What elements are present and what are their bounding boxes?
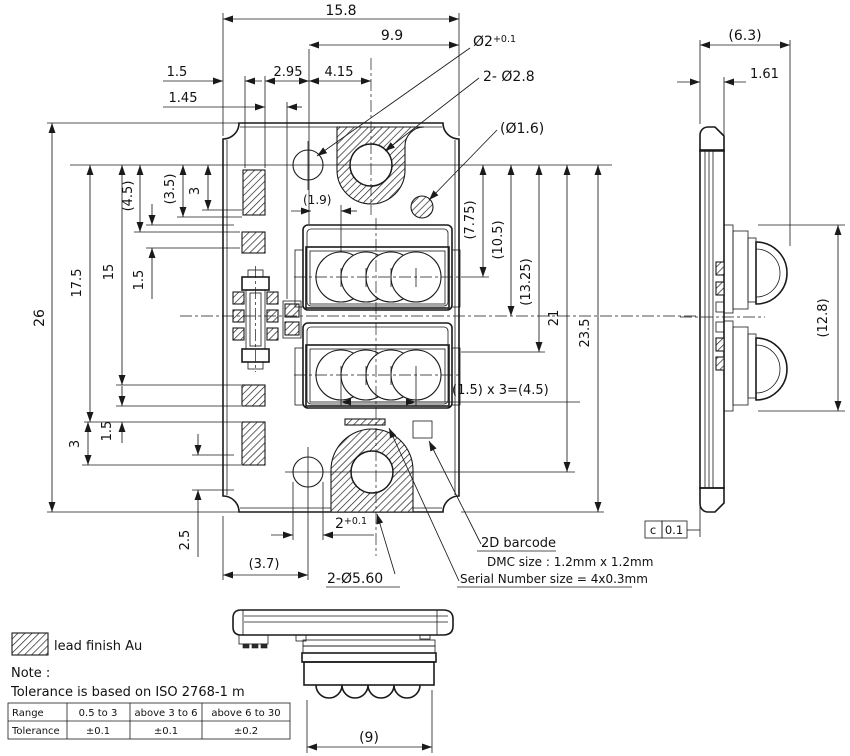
dim-1-61: 1.61 [677, 67, 779, 82]
side-pad [716, 282, 724, 295]
hatch-swatch-icon [12, 633, 48, 655]
swatch-label: lead finish Au [54, 639, 142, 654]
dim-2-5: 2.5 [178, 434, 198, 557]
dim-label: (12.8) [816, 298, 831, 337]
barcode-serial: Serial Number size = 4x0.3mm [460, 572, 648, 586]
dim-9-9: 9.9 [309, 28, 459, 45]
drawing-canvas: 15.8 9.9 1.5 2.95 4.15 1.45 (1.9) [0, 0, 850, 756]
side-pad [716, 338, 724, 351]
bottom-housing [304, 662, 434, 685]
dim-label: 1.61 [750, 67, 779, 82]
gold-pad [242, 385, 265, 406]
dim-13-25: (13.25) [519, 165, 539, 352]
dim-label: 1.5 [167, 65, 188, 80]
callout-label: (Ø1.6) [500, 121, 544, 137]
dim-2-plus-0-1: 2+0.1 [271, 516, 374, 535]
side-top-cap [700, 127, 724, 151]
dim-21: 21 [547, 165, 567, 472]
bottom-stack [302, 653, 436, 662]
dim-label: 26 [32, 309, 48, 327]
dim-label: 15 [102, 264, 117, 281]
gold-pad [243, 170, 265, 215]
dim-label: 3 [68, 440, 83, 448]
dim-1-45: 1.45 [163, 91, 302, 107]
dim-label: 2.5 [178, 530, 193, 551]
dim-23-5: 23.5 [578, 165, 598, 512]
side-lens-dome [756, 338, 787, 400]
dim-1-5-top: 1.5 [163, 65, 262, 81]
callout-label: 2- Ø2.8 [483, 69, 535, 85]
bottom-lens-scallops [316, 685, 420, 698]
connector [233, 266, 278, 372]
connector-pad [233, 292, 244, 304]
dim-10-5: (10.5) [491, 165, 511, 316]
dim-15: 15 [102, 165, 122, 385]
dim-label: (3.7) [249, 557, 280, 572]
dim-1-5-lower: 1.5 [100, 386, 122, 443]
table-cell: Tolerance [11, 726, 60, 737]
datum-value: 0.1 [665, 523, 683, 537]
bottom-stack [303, 640, 435, 646]
bottom-connector [239, 635, 268, 644]
table-cell: ±0.1 [86, 726, 110, 737]
dim-3-7: (3.7) [223, 557, 308, 575]
dim-label: 21 [547, 310, 562, 327]
table-cell: ±0.2 [234, 726, 258, 737]
dim-label: (3.5) [163, 174, 178, 205]
dim-7-75: (7.75) [463, 165, 483, 277]
side-view: (6.3) 1.61 (12.8) c 0.1 [645, 28, 845, 538]
dim-3-upper: 3 [188, 165, 208, 210]
barcode-annotation: 2D barcode DMC size : 1.2mm x 1.2mm Seri… [389, 428, 653, 587]
table-cell: 0.5 to 3 [79, 708, 118, 719]
front-view: 15.8 9.9 1.5 2.95 4.15 1.45 (1.9) [32, 3, 697, 587]
connector-pad [267, 328, 278, 340]
dim-label: 2.95 [274, 65, 303, 80]
barcode-dmc: DMC size : 1.2mm x 1.2mm [487, 555, 653, 569]
gold-pad [242, 422, 265, 465]
slits [283, 301, 301, 338]
callout-label: Ø2+0.1 [473, 34, 516, 50]
dim-label: (6.3) [728, 28, 761, 44]
dim-label: 3 [188, 187, 203, 195]
table-cell: ±0.1 [154, 726, 178, 737]
dim-label: 9.9 [381, 28, 403, 44]
legend: lead finish Au Note : Tolerance is based… [10, 633, 245, 700]
lens-module-2 [294, 323, 462, 408]
dim-label: 15.8 [325, 3, 356, 19]
dim-3-5: (3.5) [163, 165, 183, 217]
technical-drawing-page: 15.8 9.9 1.5 2.95 4.15 1.45 (1.9) [0, 0, 850, 756]
dim-label: 17.5 [70, 269, 85, 298]
side-bottom-cap [700, 488, 724, 512]
side-pad [716, 262, 724, 275]
note-text: Tolerance is based on ISO 2768-1 m [10, 685, 245, 700]
dim-overall-height: 26 [32, 123, 52, 512]
table-cell: above 3 to 6 [135, 708, 198, 719]
connector-pad [267, 292, 278, 304]
dim-12-8: (12.8) [816, 225, 838, 411]
dim-label: 1.5 [100, 421, 115, 442]
dim-4-5: (4.5) [121, 165, 140, 232]
bottom-stack [303, 646, 435, 653]
side-housing [733, 231, 748, 309]
bond-finger-strip [295, 250, 303, 307]
dim-17-5: 17.5 [70, 165, 90, 422]
dim-label: (1.5) x 3=(4.5) [452, 383, 549, 398]
dim-label: 2+0.1 [335, 516, 367, 532]
dim-1-5-left: 1.5 [132, 204, 152, 299]
callout-2-phi2-8: 2- Ø2.8 [385, 69, 535, 151]
callout-label: 2-Ø5.60 [327, 571, 383, 587]
connector-pad [233, 328, 244, 340]
datum-feature-box: c 0.1 [645, 505, 700, 538]
dim-1-9: (1.9) [291, 193, 357, 211]
side-stack [724, 225, 733, 313]
dim-label: (1.9) [303, 193, 331, 207]
dim-label: (10.5) [491, 220, 506, 259]
side-stack [724, 321, 733, 411]
dim-label: 4.15 [325, 65, 354, 80]
gold-pad [242, 232, 265, 253]
dim-3-lower: 3 [68, 422, 88, 465]
side-lens-base [748, 238, 756, 302]
dim-6-3: (6.3) [700, 28, 790, 45]
tolerance-table: Range 0.5 to 3 above 3 to 6 above 6 to 3… [8, 703, 290, 739]
dim-2-95: 2.95 [265, 65, 309, 81]
dim-label: 23.5 [578, 319, 593, 348]
barcode-square [413, 421, 432, 438]
side-plate [700, 150, 724, 488]
bottom-view: (9) [233, 610, 453, 753]
datum-letter: c [650, 523, 656, 537]
dim-label: (4.5) [121, 181, 136, 212]
barcode-title: 2D barcode [481, 536, 556, 551]
serial-number-area [345, 419, 385, 425]
dim-label: 1.5 [132, 270, 147, 291]
dim-label: (13.25) [519, 258, 534, 305]
lens-module-1 [294, 225, 462, 310]
dim-overall-width: 15.8 [223, 3, 459, 19]
side-lens-base [748, 334, 756, 398]
bottom-plate [233, 610, 453, 635]
bond-finger-strip [295, 348, 303, 405]
dim-label: 1.45 [169, 91, 198, 106]
table-cell: Range [12, 708, 44, 719]
note-title: Note : [11, 666, 50, 681]
side-housing [733, 327, 748, 405]
side-lens-dome [756, 242, 787, 304]
dim-9: (9) [307, 730, 432, 747]
dim-label: (9) [359, 730, 379, 746]
table-cell: above 6 to 30 [211, 708, 280, 719]
side-pad [716, 357, 724, 370]
dim-4-15: 4.15 [309, 65, 371, 81]
dim-label: (7.75) [463, 200, 478, 239]
